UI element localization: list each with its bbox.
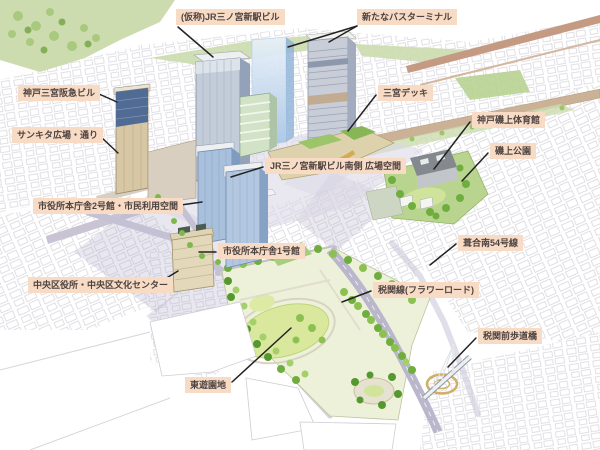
green-mid-building [240,93,277,157]
city-rendering-illustration [0,0,600,450]
hankyu-building-tower [114,84,150,194]
rendering-canvas: (仮称)JR三ノ宮新駅ビル新たなバスターミナル神戸三宮阪急ビルサンキタ広場・通り… [0,0,600,450]
ward-office-building [170,224,214,293]
